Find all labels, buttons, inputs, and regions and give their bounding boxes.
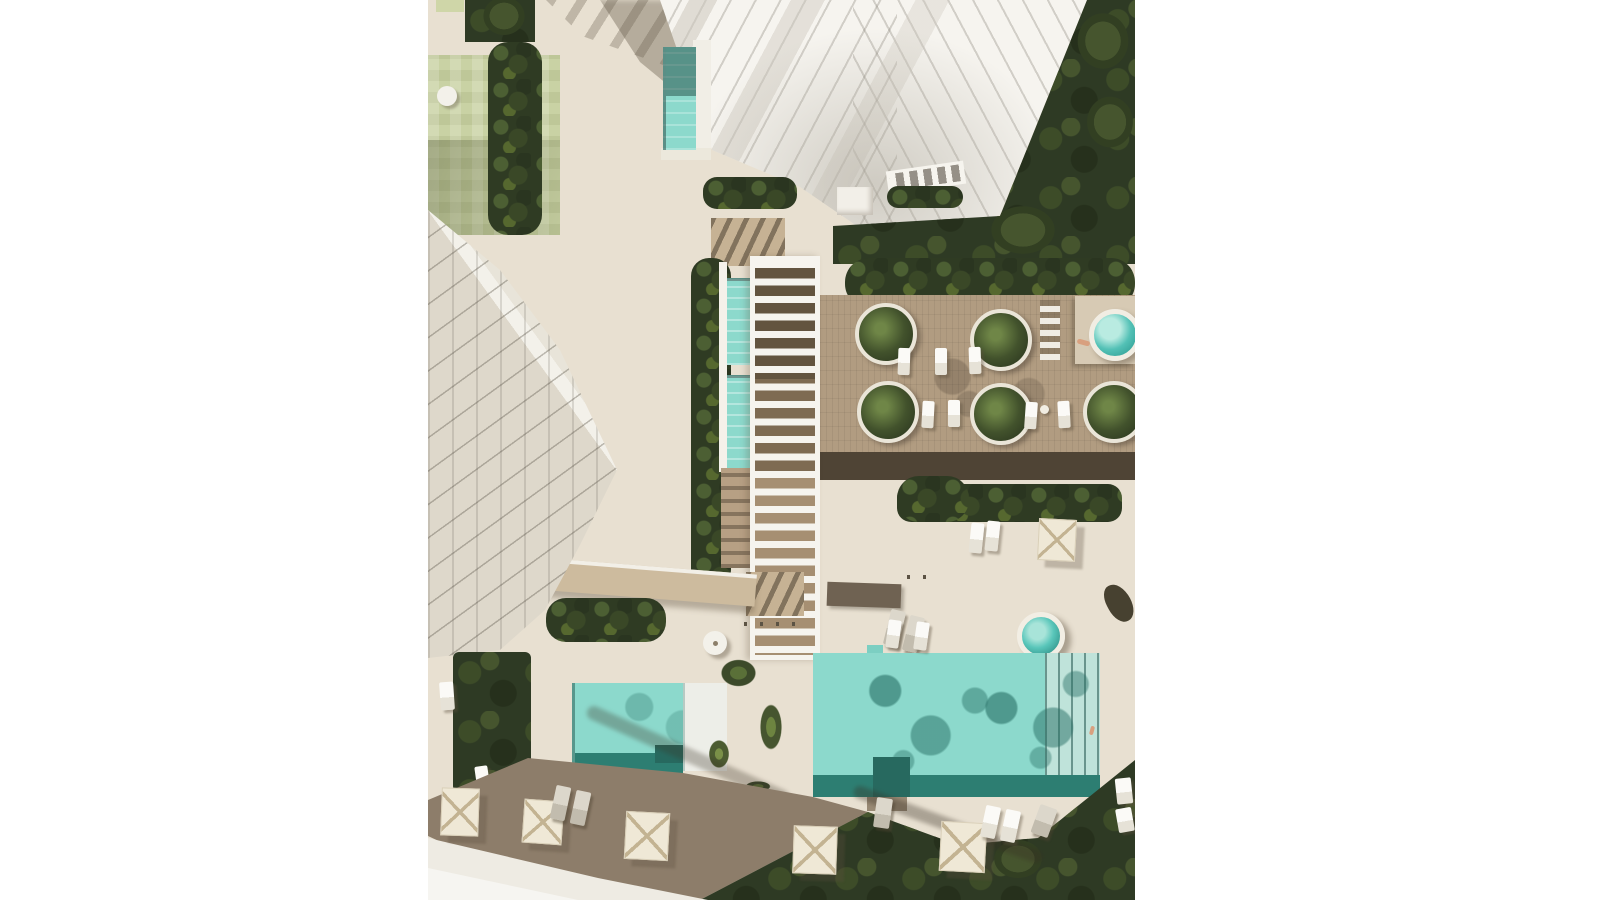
bollard-dots-pergola xyxy=(744,622,802,626)
lap-channel-2 xyxy=(727,375,751,471)
tower-hedge-right xyxy=(887,186,963,208)
dark-mat xyxy=(827,582,902,609)
render-area xyxy=(428,0,1135,900)
lawn-sliver xyxy=(436,0,464,12)
mid-hedge-clump xyxy=(897,476,969,522)
tree-canopy-right-2 xyxy=(1081,90,1135,154)
deck-lounger-3 xyxy=(969,347,982,374)
right-edge-lounger-1 xyxy=(1115,777,1134,805)
mid-lounger-2 xyxy=(984,520,1000,551)
spa-steps xyxy=(1040,300,1060,360)
left-margin xyxy=(0,0,428,900)
deck-side-table xyxy=(1040,405,1049,414)
poolside-lounger-top-1 xyxy=(885,619,902,649)
deck-lounger-5 xyxy=(948,400,960,427)
hedge-column-left xyxy=(488,42,542,235)
umbrella-bottom-4 xyxy=(792,825,838,875)
tower-stair-box xyxy=(837,187,873,215)
right-margin xyxy=(1135,0,1600,900)
umbrella-bottom-1 xyxy=(440,787,480,836)
playground-parasol xyxy=(437,86,457,106)
walkway-bushes xyxy=(546,598,666,642)
deck-lounger-7 xyxy=(1057,401,1070,429)
tower-lap-pool xyxy=(663,47,696,150)
lawn-lounger-1 xyxy=(439,682,455,711)
bollard-dots-mid xyxy=(907,575,939,579)
umbrella-mid xyxy=(1037,518,1077,562)
tree-canopy-top-left xyxy=(478,0,530,40)
deck-lounger-1 xyxy=(898,348,911,375)
umbrella-bottom-5 xyxy=(939,821,988,873)
round-planter-3 xyxy=(857,381,919,443)
deck-lounger-4 xyxy=(921,401,934,429)
deck-spa-pool xyxy=(1089,309,1135,361)
beanbag-chair xyxy=(1099,580,1135,627)
tower-hedge-left xyxy=(703,177,797,209)
tower-lap-pool-shadow xyxy=(666,47,696,96)
channel-wood-landing xyxy=(721,468,753,568)
deck-edge-shadow-band xyxy=(820,452,1135,480)
bottom-lounger-5 xyxy=(1000,809,1021,843)
umbrella-bottom-3 xyxy=(624,811,670,861)
main-pool-steps xyxy=(873,757,910,797)
deck-lounger-6 xyxy=(1024,402,1038,430)
round-planter-4 xyxy=(970,383,1032,445)
channel-rail xyxy=(719,262,727,472)
lap-channel-1 xyxy=(727,278,751,365)
tree-canopy-right-1 xyxy=(1071,6,1135,76)
mid-lounger-1 xyxy=(968,522,984,553)
deck-lounger-2 xyxy=(935,348,947,375)
aerial-render-page xyxy=(0,0,1600,900)
poolside-lounger-top-2 xyxy=(913,621,930,651)
main-pool xyxy=(813,653,1100,797)
bottom-lounger-4 xyxy=(980,805,1001,839)
